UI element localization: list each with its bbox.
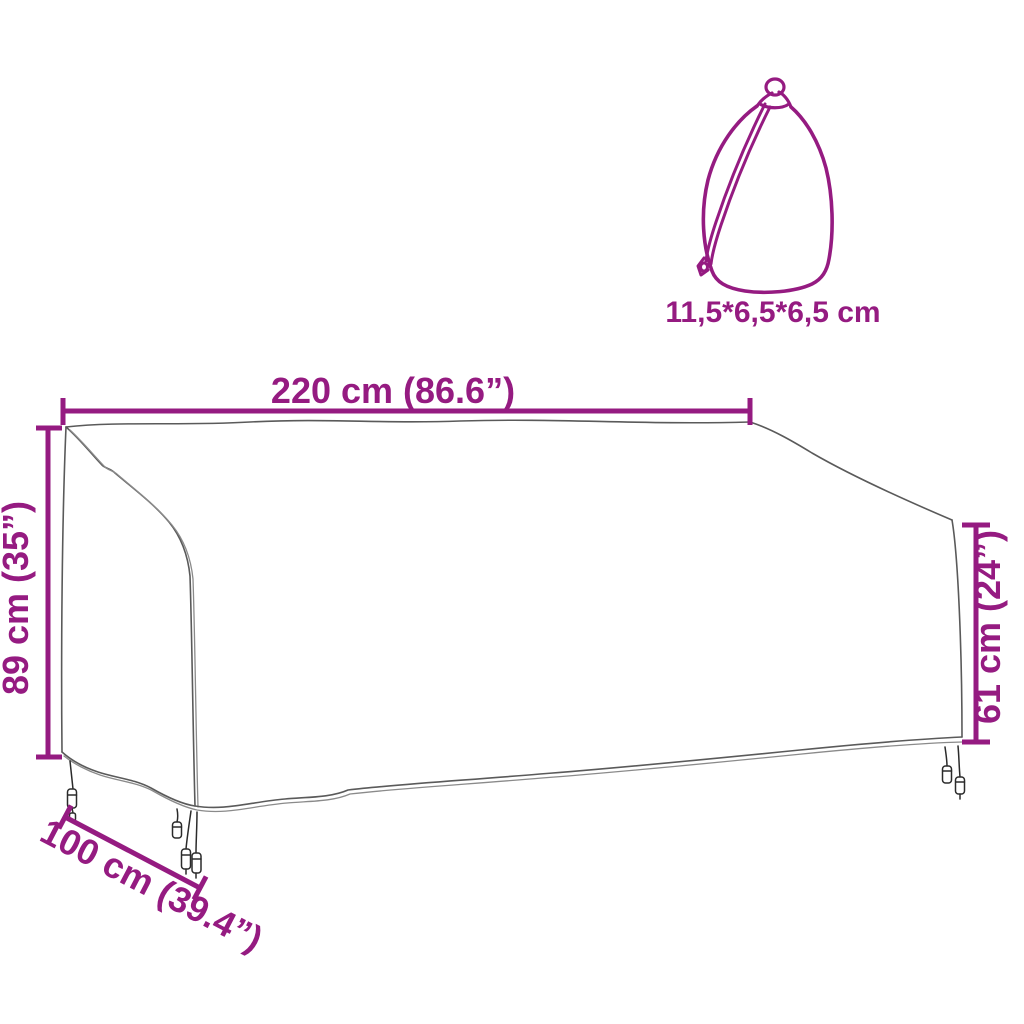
toggle-front-left-c xyxy=(192,812,201,878)
bag-size-label: 11,5*6,5*6,5 cm xyxy=(665,296,880,329)
diagram-svg: 220 cm (86.6”) 89 cm (35”) 61 cm (24”) 1… xyxy=(0,0,1024,1024)
cover-right-edge xyxy=(952,520,962,737)
cover-right-slope-edge xyxy=(750,422,952,520)
product-dimension-diagram: 220 cm (86.6”) 89 cm (35”) 61 cm (24”) 1… xyxy=(0,0,1024,1024)
bag-knot xyxy=(757,79,791,108)
drawstring-bag-drawing xyxy=(698,79,832,292)
cover-left-back-edge xyxy=(62,427,66,752)
toggle-right-b xyxy=(956,746,965,799)
width-label: 220 cm (86.6”) xyxy=(271,370,515,411)
toggle-front-left-b xyxy=(182,811,192,874)
dimension-back-height xyxy=(36,428,62,757)
bench-cover-drawing xyxy=(62,420,965,878)
drawstring-toggles xyxy=(68,746,965,878)
front-height-label: 61 cm (24”) xyxy=(967,530,1008,724)
toggle-right-a xyxy=(943,747,952,783)
toggle-front-left-a xyxy=(173,809,182,838)
cover-top-edge xyxy=(66,420,750,427)
depth-label: 100 cm (39.4”) xyxy=(34,810,270,959)
back-height-label: 89 cm (35”) xyxy=(0,501,36,695)
cover-left-slope-seam-inner xyxy=(70,430,198,807)
cover-left-slope-seam xyxy=(66,427,195,806)
